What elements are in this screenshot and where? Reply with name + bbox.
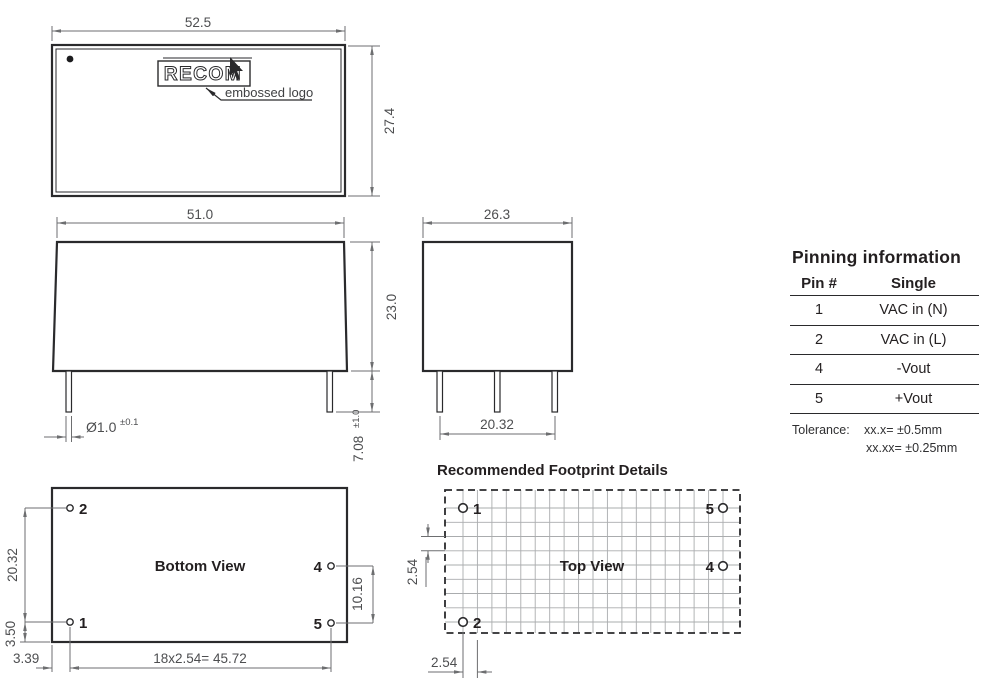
dim-274-ext-lines <box>348 46 380 196</box>
bottom-pin1-pad <box>67 619 73 625</box>
fp-dim-grid-v: 2.54 <box>405 558 420 585</box>
footprint-drawing: Recommended Footprint Details Top View 1… <box>405 462 740 678</box>
pinning-row-4: 5 +Vout <box>790 385 979 415</box>
footprint-pin5-label: 5 <box>706 501 714 518</box>
dim-bottom-pitch-row: 18x2.54= 45.72 <box>153 651 246 666</box>
dim-bottom-edge-h: 3.39 <box>13 651 39 666</box>
side-pin-3 <box>552 371 558 412</box>
pin-function: -Vout <box>848 361 979 377</box>
dim-pin-diameter: Ø1.0 <box>86 419 117 435</box>
footprint-pin2-label: 2 <box>473 615 481 632</box>
tolerance-note: Tolerance:xx.x= ±0.5mm xx.xx= ±0.25mm <box>792 423 979 455</box>
pinning-row-1: 1 VAC in (N) <box>790 296 979 326</box>
footprint-pin2-pad <box>459 618 468 627</box>
dim-side-pin-span: 20.32 <box>480 417 514 432</box>
side-pin-2 <box>495 371 501 412</box>
front-view-case <box>53 242 347 371</box>
pinning-col-pin: Pin # <box>790 275 848 292</box>
pinning-header-row: Pin # Single <box>790 275 979 296</box>
dim-pin-length-tol: ±1.0 <box>351 410 362 428</box>
dim-23-ext-lines <box>350 242 380 371</box>
bottom-pin2-label: 2 <box>79 501 87 518</box>
tolerance-value-2: xx.xx= ±0.25mm <box>792 441 979 455</box>
front-right-pin <box>327 371 333 412</box>
dim-bottom-out-span: 10.16 <box>350 577 365 611</box>
footprint-pin4-pad <box>719 562 728 571</box>
footprint-pin5-pad <box>719 504 728 513</box>
dim-pin-length: 7.08 <box>351 436 366 462</box>
pin-number: 5 <box>790 391 848 407</box>
side-view-drawing: 26.3 20.32 <box>423 207 572 440</box>
top-view-drawing: RECOM embossed logo 52.5 27.4 <box>52 15 397 196</box>
pin-number: 2 <box>790 332 848 348</box>
pin-function: VAC in (N) <box>848 302 979 318</box>
dim-top-height: 27.4 <box>382 107 397 134</box>
pin-number: 4 <box>790 361 848 377</box>
bottom-view-label: Bottom View <box>155 558 246 575</box>
pin1-indicator-dot <box>67 56 74 63</box>
front-view-drawing: 51.0 23.0 7.08 ±1.0 Ø1.0 ±0.1 <box>44 207 399 462</box>
dim-bottom-pin-span-v: 20.32 <box>5 548 20 582</box>
dim-front-width: 51.0 <box>187 207 213 222</box>
pinning-table: Pinning information Pin # Single 1 VAC i… <box>790 247 979 455</box>
fp-dim-grid-h: 2.54 <box>431 655 458 670</box>
side-pin-1 <box>437 371 443 412</box>
dim-bottom-edge-v: 3.50 <box>3 621 18 647</box>
footprint-pin4-label: 4 <box>706 559 715 576</box>
footprint-pin1-pad <box>459 504 468 513</box>
bottom-pin2-pad <box>67 505 73 511</box>
bottom-pin1-label: 1 <box>79 615 87 632</box>
bottom-pin4-pad <box>328 563 334 569</box>
footprint-title: Recommended Footprint Details <box>437 462 668 479</box>
dim-front-height: 23.0 <box>384 294 399 320</box>
datasheet-mechanical-drawing: RECOM embossed logo 52.5 27.4 51.0 23.0 … <box>0 0 994 695</box>
dim-pin-diameter-tol: ±0.1 <box>120 417 138 428</box>
pinning-row-3: 4 -Vout <box>790 355 979 385</box>
recom-logo: RECOM <box>158 57 252 86</box>
dim-top-width: 52.5 <box>185 15 211 30</box>
bottom-pin4-label: 4 <box>314 559 323 576</box>
tolerance-value-1: xx.x= ±0.5mm <box>864 423 942 437</box>
logo-caption: embossed logo <box>225 85 313 100</box>
dim-dia-ext-lines <box>66 416 72 442</box>
pinning-row-2: 2 VAC in (L) <box>790 326 979 356</box>
fp-dim-v-ext-lines <box>421 537 445 551</box>
pinning-col-single: Single <box>848 275 979 292</box>
footprint-view-label: Top View <box>560 558 625 575</box>
tolerance-label: Tolerance: <box>792 423 864 437</box>
front-left-pin <box>66 371 72 412</box>
pin-function: VAC in (L) <box>848 332 979 348</box>
bottom-view-drawing: Bottom View 2 1 4 5 20.32 3.50 3.39 18x2… <box>3 488 373 672</box>
bottom-pin5-label: 5 <box>314 616 322 633</box>
bottom-pin5-pad <box>328 620 334 626</box>
pin-number: 1 <box>790 302 848 318</box>
footprint-pin1-label: 1 <box>473 501 481 518</box>
pinning-title: Pinning information <box>792 247 979 268</box>
side-view-case <box>423 242 572 371</box>
dim-side-width: 26.3 <box>484 207 510 222</box>
fp-dim-h-ext-lines <box>463 632 477 678</box>
pin-function: +Vout <box>848 391 979 407</box>
